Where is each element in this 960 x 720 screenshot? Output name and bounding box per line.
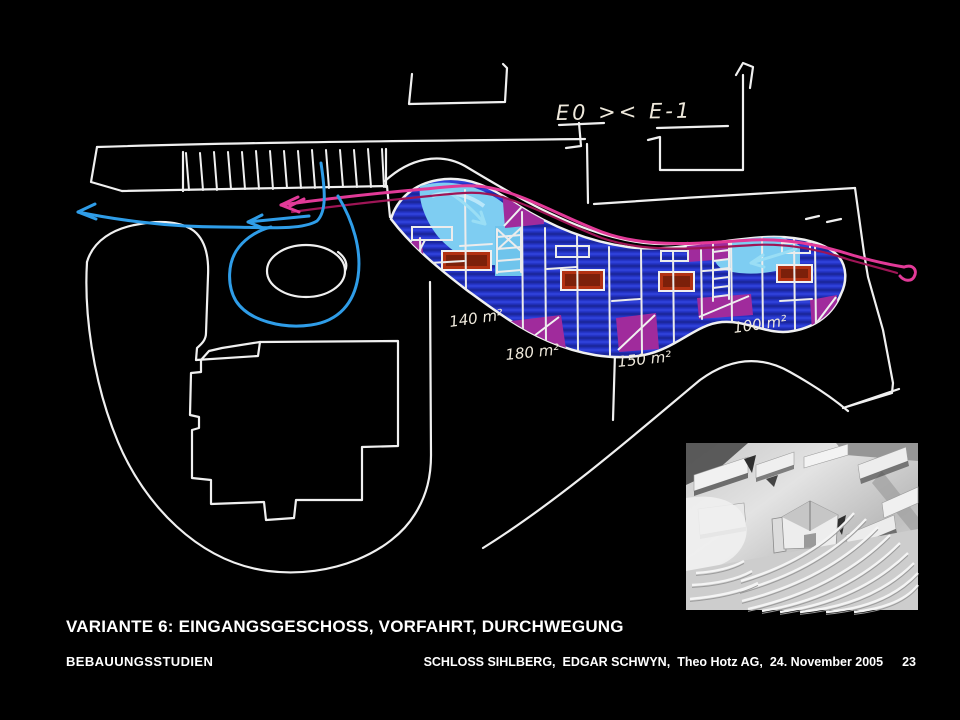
hill-outline-top [87, 222, 260, 360]
route-cyan-arrowhead-left [78, 204, 96, 219]
route-cyan-loop [230, 196, 359, 326]
existing-building-footprint [190, 341, 398, 520]
area-label-180: 180 m² [505, 340, 561, 364]
turnaround-ellipse [267, 245, 345, 297]
slide-title: VARIANTE 6: EINGANGSGESCHOSS, VORFAHRT, … [66, 617, 624, 637]
street-band-hatch-lines [186, 149, 384, 190]
slide-footer: SCHLOSS SIHLBERG, EDGAR SCHWYN, Theo Hot… [424, 655, 916, 669]
footer-author: EDGAR SCHWYN, [563, 655, 671, 669]
footer-date: 24. November 2005 [770, 655, 883, 669]
model-photo-inset [686, 443, 918, 614]
hill-outline-left [86, 262, 431, 572]
slide-category: BEBAUUNGSSTUDIEN [66, 654, 213, 669]
street-band-bottom [122, 186, 390, 217]
area-label-140: 140 m² [448, 306, 504, 331]
parcel-divider-line [613, 353, 615, 420]
l-structure [566, 123, 588, 203]
route-pink-arrowhead-right [900, 266, 915, 280]
site-plan-sketch: E0 >< E-1 140 m² 180 m² 150 m² 100 m² [0, 0, 960, 720]
street-band-left-taper [91, 147, 122, 191]
presentation-slide: E0 >< E-1 140 m² 180 m² 150 m² 100 m² [0, 0, 960, 720]
street-band-top [97, 139, 585, 147]
right-parcel-edge [843, 188, 899, 408]
footer-project: SCHLOSS SIHLBERG, [424, 655, 556, 669]
footer-firm: Theo Hotz AG, [677, 655, 763, 669]
u-building-outline [409, 64, 507, 104]
page-number: 23 [902, 655, 916, 669]
level-annotation: E0 >< E-1 [556, 99, 693, 125]
upper-boundary-line [594, 188, 855, 204]
dashed-marks [806, 216, 841, 222]
